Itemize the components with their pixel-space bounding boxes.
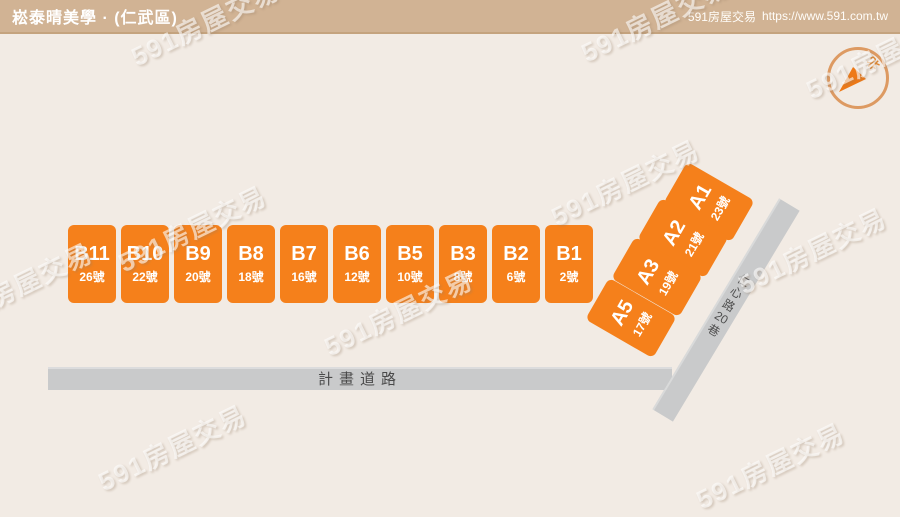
block-house-number: 8號 [454, 268, 473, 285]
block-name: B2 [503, 244, 529, 265]
building-block-b5[interactable]: B510號 [386, 225, 434, 303]
building-block-b3[interactable]: B38號 [439, 225, 487, 303]
block-name: B1 [556, 244, 582, 265]
watermark-text: 591房屋交易 [91, 395, 252, 499]
site-plan-canvas: 計畫道路 仁心路20巷 B1126號B1022號B920號B818號B716號B… [0, 34, 900, 510]
block-name: B7 [291, 244, 317, 265]
block-name: B6 [344, 244, 370, 265]
header-site-info: 591房屋交易 https://www.591.com.tw [688, 8, 888, 25]
block-name: B10 [127, 244, 164, 265]
building-block-b7[interactable]: B716號 [280, 225, 328, 303]
block-name: B3 [450, 244, 476, 265]
block-house-number: 2號 [560, 268, 579, 285]
block-house-number: 10號 [397, 268, 422, 285]
block-name: B9 [185, 244, 211, 265]
compass: 北 [827, 47, 889, 109]
block-house-number: 20號 [185, 268, 210, 285]
north-arrow-icon [839, 67, 866, 92]
block-name: B8 [238, 244, 264, 265]
building-block-b8[interactable]: B818號 [227, 225, 275, 303]
site-brand-label: 591房屋交易 [688, 8, 756, 25]
block-house-number: 26號 [79, 268, 104, 285]
watermark-text: 591房屋交易 [689, 413, 850, 517]
building-block-b9[interactable]: B920號 [174, 225, 222, 303]
building-block-b11[interactable]: B1126號 [68, 225, 116, 303]
building-block-b6[interactable]: B612號 [333, 225, 381, 303]
block-house-number: 12號 [344, 268, 369, 285]
building-block-b2[interactable]: B26號 [492, 225, 540, 303]
block-house-number: 16號 [291, 268, 316, 285]
project-title: 崧泰晴美學 · (仁武區) [12, 4, 178, 28]
block-name: B5 [397, 244, 423, 265]
site-url: https://www.591.com.tw [762, 9, 888, 23]
building-block-b10[interactable]: B1022號 [121, 225, 169, 303]
block-name: B11 [74, 244, 110, 265]
road-planned-label: 計畫道路 [318, 368, 402, 389]
block-house-number: 22號 [132, 268, 157, 285]
header-bar: 崧泰晴美學 · (仁武區) 591房屋交易 https://www.591.co… [0, 0, 900, 34]
road-planned: 計畫道路 [48, 367, 672, 390]
block-house-number: 18號 [238, 268, 263, 285]
block-house-number: 6號 [507, 268, 526, 285]
compass-north-label: 北 [863, 53, 884, 74]
building-block-b1[interactable]: B12號 [545, 225, 593, 303]
